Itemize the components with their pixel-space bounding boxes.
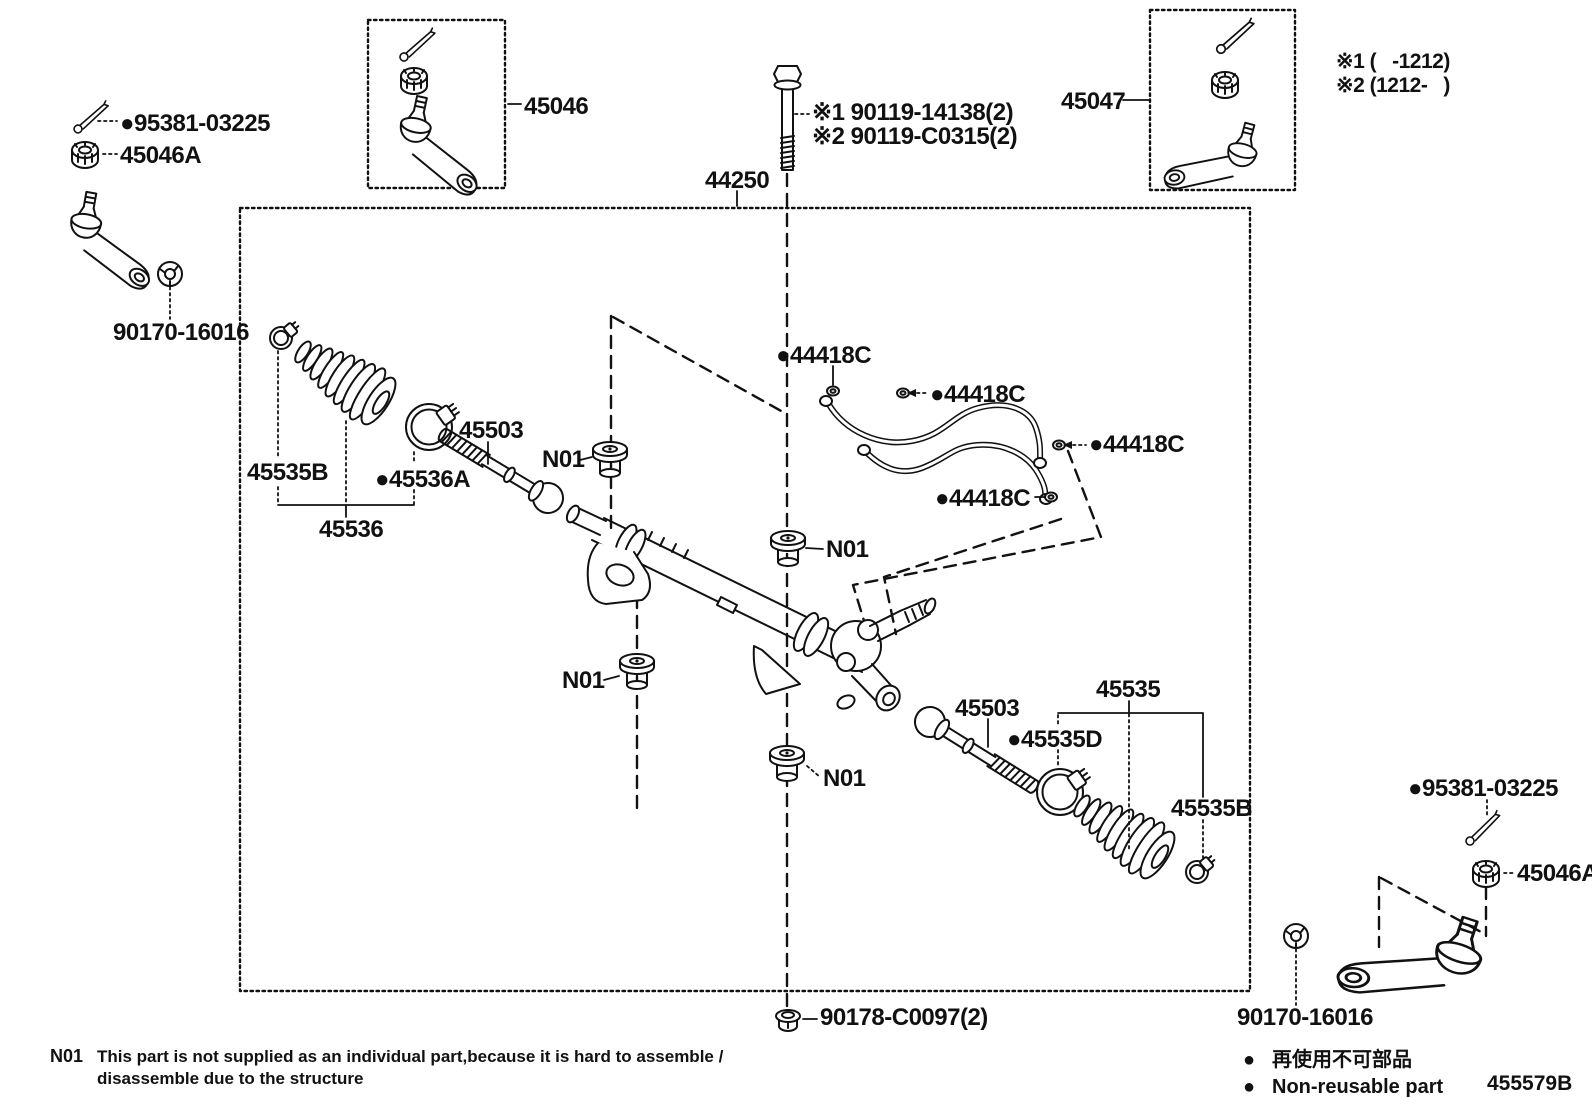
note-production-range-2: ※2 (1212- ) xyxy=(1336,74,1450,97)
boot-clamp-small-right-drawing xyxy=(1186,854,1217,883)
callout-45503-right: 45503 xyxy=(955,695,1019,722)
callout-N01-3: N01 xyxy=(562,667,605,694)
callout-44418C-3: ●44418C xyxy=(1089,431,1184,458)
tie-rod-end-drawing-kit-right xyxy=(1160,106,1263,207)
boot-clamp-large-left-drawing xyxy=(406,402,461,450)
callout-90119-option1: ※1 90119-14138(2) xyxy=(812,99,1013,126)
callout-N01-1: N01 xyxy=(542,446,585,473)
lock-nut-drawing-top-left xyxy=(158,262,182,286)
callout-95381-bottom-right: ●95381-03225 xyxy=(1408,775,1558,802)
cotter-pin-drawing-bottom-right xyxy=(1460,811,1505,847)
castle-nut-drawing-bottom-right xyxy=(1473,861,1499,887)
tube-gasket-ring-1 xyxy=(827,387,839,396)
steering-boot-left-drawing xyxy=(282,324,403,432)
callout-N01-2: N01 xyxy=(826,536,869,563)
castle-nut-drawing-kit-left xyxy=(401,68,427,94)
legend-label-en: Non-reusable part xyxy=(1272,1076,1443,1098)
sheet-code: 455579B xyxy=(1487,1072,1572,1095)
callout-45046: 45046 xyxy=(524,93,588,120)
bushing-drawing-4 xyxy=(770,746,804,781)
callout-44250: 44250 xyxy=(705,167,769,194)
callout-45535B-right: 45535B xyxy=(1171,795,1252,822)
callout-45535D: ●45535D xyxy=(1007,726,1102,753)
cotter-pin-drawing-kit-left xyxy=(395,28,440,62)
bushing-drawing-2 xyxy=(771,531,805,566)
callout-45046A-top-left: 45046A xyxy=(120,142,201,169)
cotter-pin-drawing-kit-right xyxy=(1211,18,1259,54)
castle-nut-drawing-kit-right xyxy=(1212,72,1238,98)
legend-label-jp: 再使用不可部品 xyxy=(1272,1047,1412,1071)
callout-44418C-4: ●44418C xyxy=(935,485,1030,512)
callout-45536: 45536 xyxy=(319,516,383,543)
callout-95381-top-left: ●95381-03225 xyxy=(120,110,270,137)
callout-44418C-2: ●44418C xyxy=(930,381,1025,408)
lock-nut-drawing-bottom-right xyxy=(1284,924,1308,948)
castle-nut-drawing-top-left xyxy=(72,142,98,168)
tie-rod-end-drawing-kit-left xyxy=(389,94,495,197)
note-production-range-1: ※1 ( -1212) xyxy=(1336,50,1450,73)
main-assembly-boundary-box xyxy=(240,208,1250,991)
callout-45535B-left: 45535B xyxy=(247,459,328,486)
callout-90119-option2: ※2 90119-C0315(2) xyxy=(812,123,1017,150)
callout-90170-bottom-right: 90170-16016 xyxy=(1237,1004,1373,1031)
mounting-bolt-drawing xyxy=(774,66,801,170)
callout-45503-left: 45503 xyxy=(459,417,523,444)
tie-rod-end-drawing-top-left xyxy=(62,190,165,290)
boot-clamp-small-left-drawing xyxy=(270,320,301,349)
callout-44418C-1: ●44418C xyxy=(776,342,871,369)
bushing-drawing-1 xyxy=(593,442,627,477)
cotter-pin-drawing-top-left xyxy=(69,101,113,134)
parts-diagram-page: ●95381-03225 45046A 90170-16016 45046 ※1… xyxy=(0,0,1592,1099)
legend-bullet-en-icon: ● xyxy=(1243,1076,1255,1098)
footnote-line2: disassemble due to the structure xyxy=(97,1069,363,1088)
tube-gasket-ring-4 xyxy=(1045,493,1057,502)
leader-lines xyxy=(98,100,1515,1019)
callout-45535: 45535 xyxy=(1096,676,1160,703)
footnote-code: N01 xyxy=(50,1046,83,1066)
callout-90178: 90178-C0097(2) xyxy=(820,1004,988,1031)
callout-N01-4: N01 xyxy=(823,765,866,792)
rack-housing-drawing xyxy=(564,504,937,715)
construction-dashed-lines xyxy=(611,174,1486,1006)
callout-45536A: ●45536A xyxy=(375,466,470,493)
bushing-drawing-3 xyxy=(620,654,654,689)
footnote-line1: This part is not supplied as an individu… xyxy=(97,1047,724,1066)
callout-90170-top-left: 90170-16016 xyxy=(113,319,249,346)
rack-nut-drawing xyxy=(776,1010,800,1031)
legend-bullet-jp-icon: ● xyxy=(1243,1049,1255,1071)
callout-45047: 45047 xyxy=(1061,88,1125,115)
diagram-canvas: ●95381-03225 45046A 90170-16016 45046 ※1… xyxy=(0,0,1592,1099)
callout-45046A-bottom-right: 45046A xyxy=(1517,860,1592,887)
